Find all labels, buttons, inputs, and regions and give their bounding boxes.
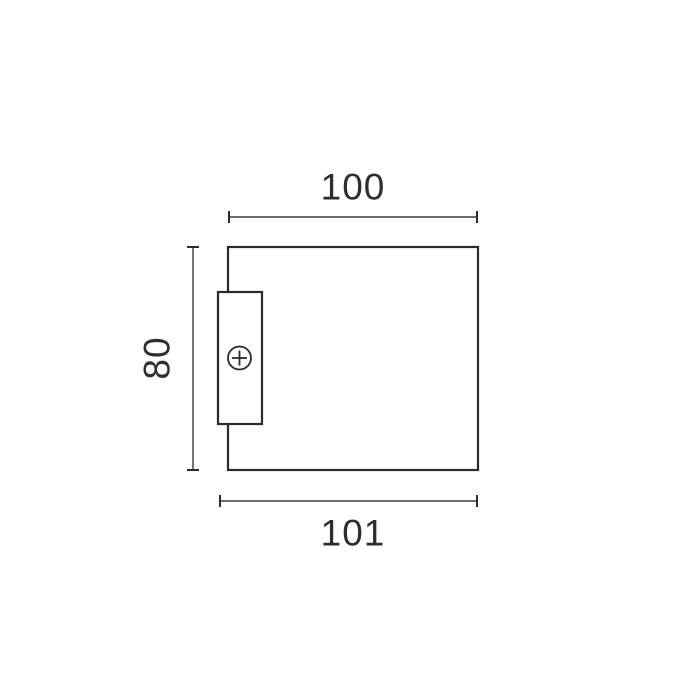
left-dimension: 80 [137, 247, 200, 470]
top-dimension: 100 [229, 167, 477, 224]
bottom-dimension-label: 101 [321, 513, 386, 554]
top-dimension-label: 100 [321, 167, 386, 208]
bottom-dimension: 101 [220, 495, 477, 554]
technical-drawing: 100 80 101 [0, 0, 700, 700]
drawing-svg: 100 80 101 [0, 0, 700, 700]
crosshead-screw-icon [228, 347, 251, 370]
main-body-outline [228, 247, 478, 470]
left-dimension-label: 80 [137, 336, 178, 379]
